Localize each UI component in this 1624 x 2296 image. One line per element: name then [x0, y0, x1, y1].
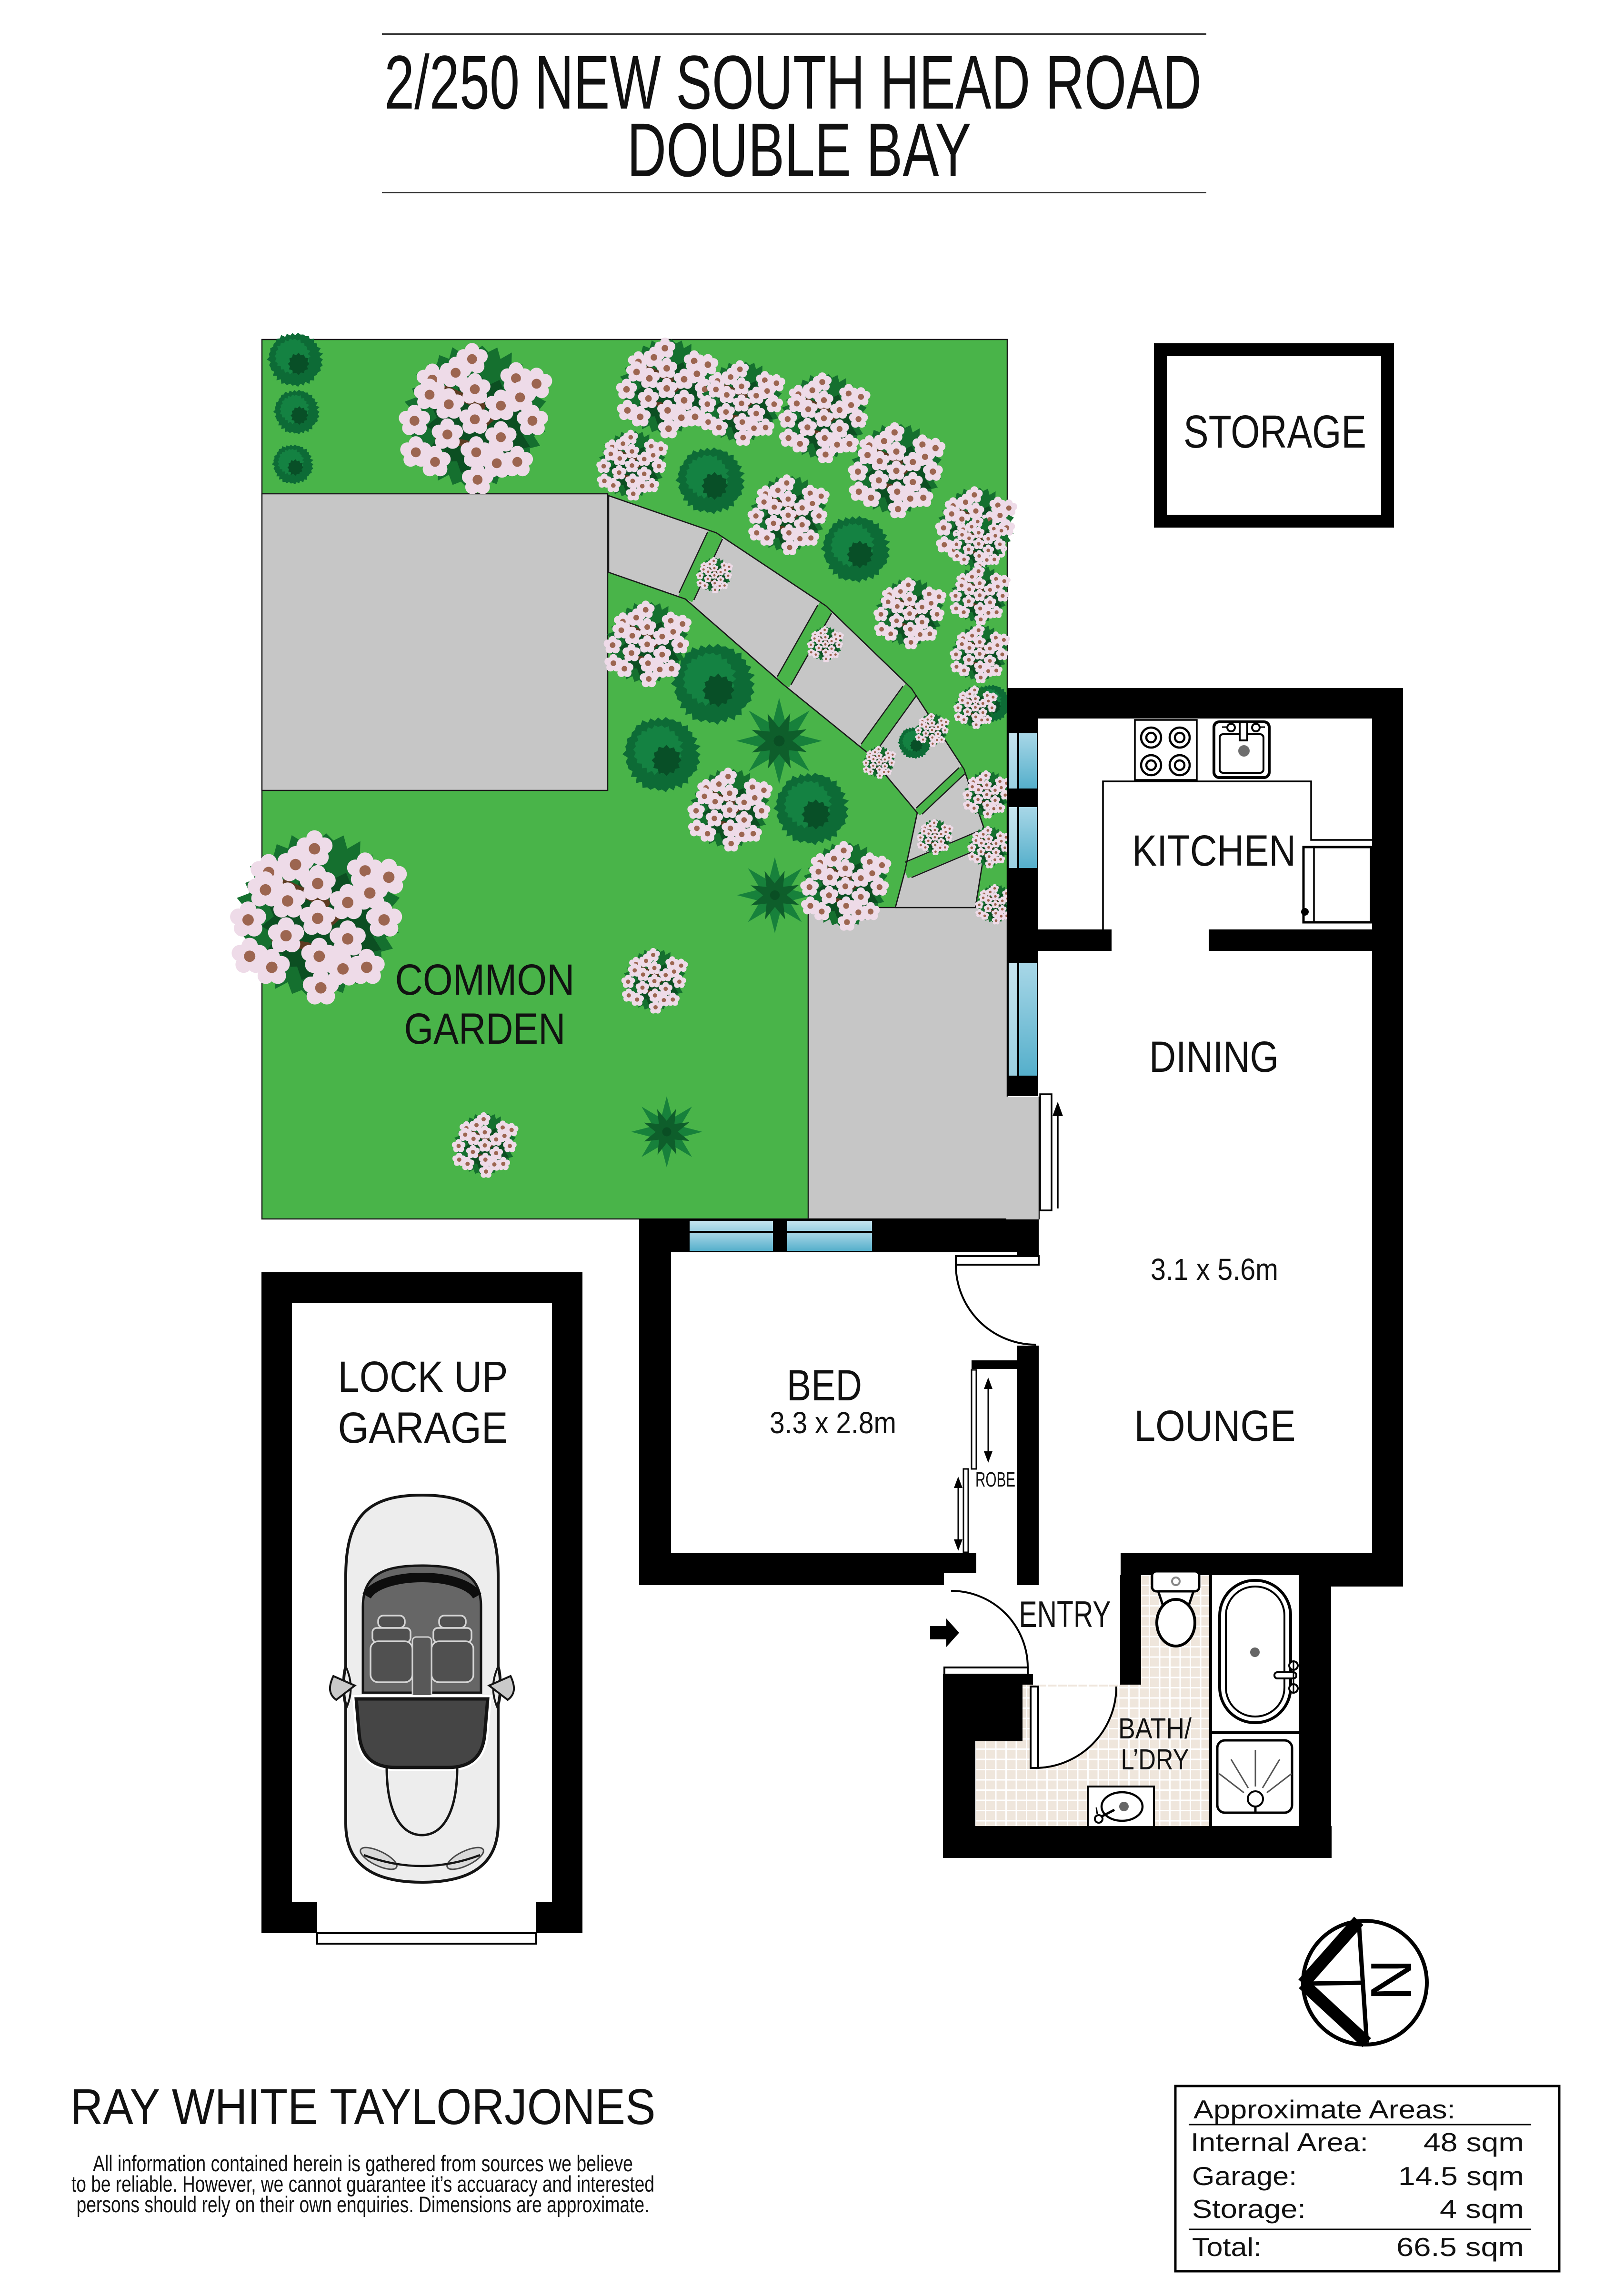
- svg-text:3.3 x 2.8m: 3.3 x 2.8m: [770, 1406, 896, 1440]
- svg-text:N: N: [1359, 1959, 1424, 2001]
- svg-text:48 sqm: 48 sqm: [1424, 2127, 1524, 2157]
- svg-text:RAY WHITE TAYLORJONES: RAY WHITE TAYLORJONES: [70, 2079, 656, 2135]
- svg-text:DINING: DINING: [1149, 1033, 1279, 1081]
- svg-text:persons should rely on their o: persons should rely on their own enquiri…: [77, 2192, 650, 2217]
- svg-text:LOCK UP: LOCK UP: [338, 1353, 508, 1401]
- svg-text:GARAGE: GARAGE: [338, 1404, 508, 1452]
- svg-text:ROBE: ROBE: [975, 1468, 1015, 1491]
- svg-text:BED: BED: [787, 1361, 862, 1410]
- svg-text:Storage:: Storage:: [1192, 2194, 1306, 2224]
- svg-text:66.5 sqm: 66.5 sqm: [1396, 2232, 1524, 2262]
- svg-text:LOUNGE: LOUNGE: [1134, 1402, 1296, 1450]
- svg-text:DOUBLE BAY: DOUBLE BAY: [627, 107, 972, 192]
- svg-text:Internal Area:: Internal Area:: [1191, 2127, 1368, 2157]
- svg-text:14.5 sqm: 14.5 sqm: [1398, 2161, 1524, 2191]
- svg-text:4 sqm: 4 sqm: [1440, 2194, 1524, 2224]
- svg-text:BATH/: BATH/: [1118, 1712, 1192, 1745]
- svg-text:3.1 x 5.6m: 3.1 x 5.6m: [1151, 1252, 1278, 1287]
- svg-text:L’DRY: L’DRY: [1121, 1743, 1189, 1776]
- svg-text:Approximate Areas:: Approximate Areas:: [1193, 2095, 1455, 2124]
- svg-text:ENTRY: ENTRY: [1019, 1593, 1111, 1635]
- svg-text:KITCHEN: KITCHEN: [1132, 827, 1296, 875]
- svg-text:Total:: Total:: [1192, 2232, 1262, 2262]
- svg-text:Garage:: Garage:: [1192, 2161, 1297, 2191]
- svg-text:COMMON: COMMON: [395, 956, 575, 1004]
- svg-text:STORAGE: STORAGE: [1183, 406, 1366, 458]
- svg-text:GARDEN: GARDEN: [404, 1005, 566, 1053]
